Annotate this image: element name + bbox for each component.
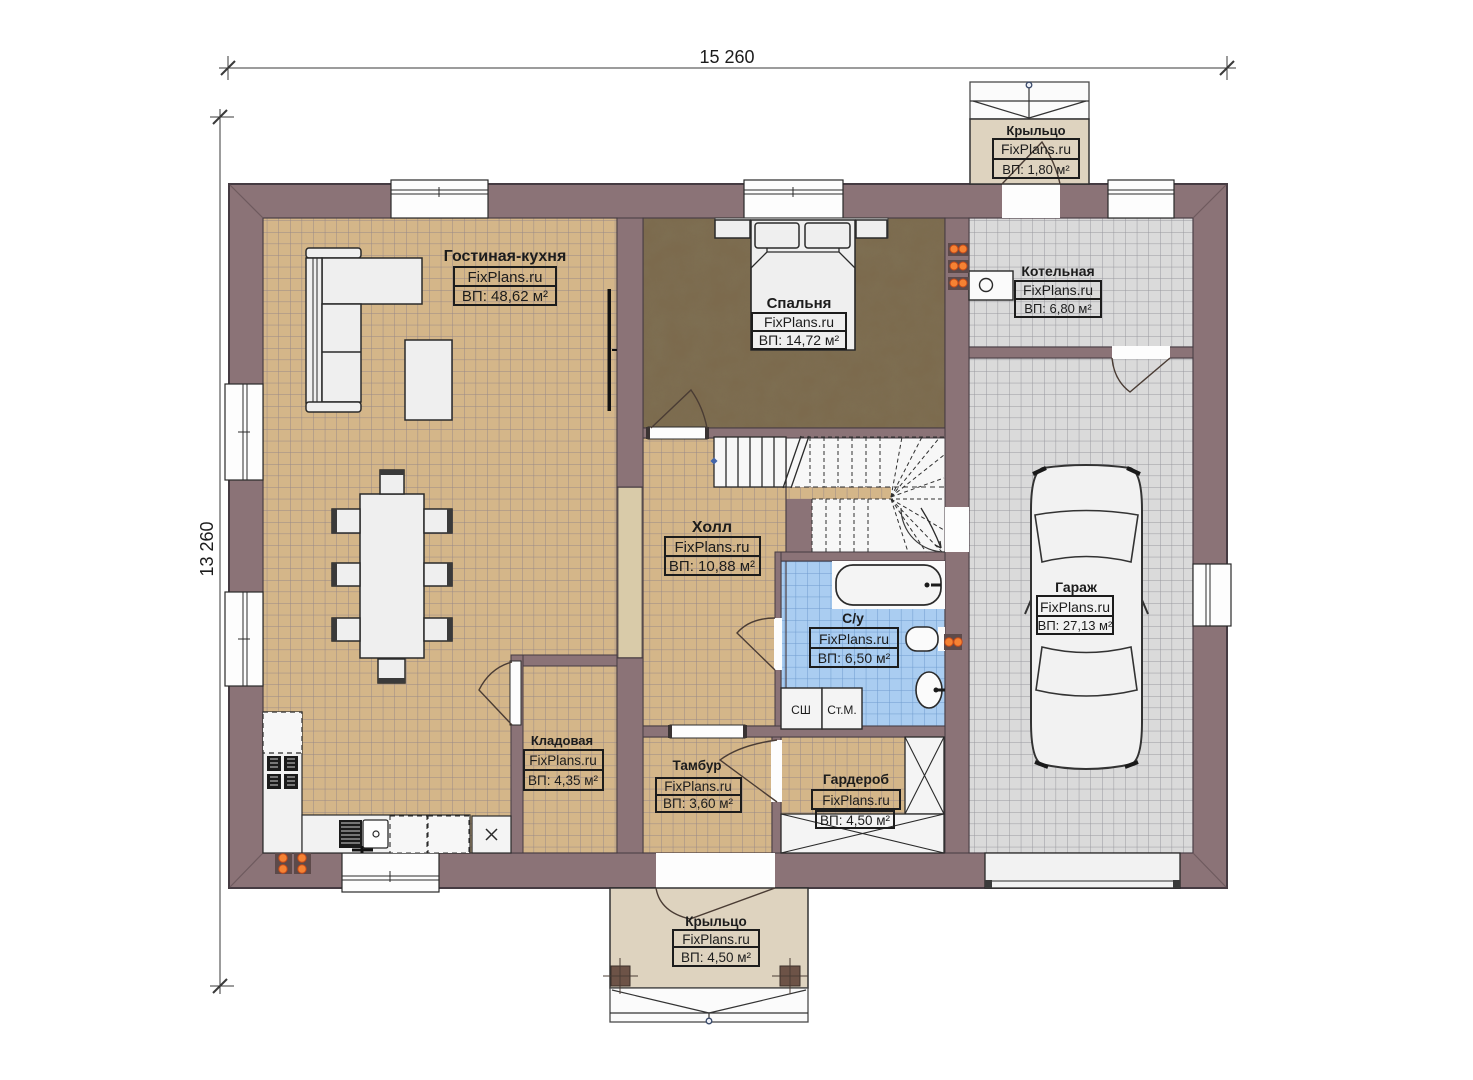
svg-text:Гардероб: Гардероб [823,771,890,787]
svg-text:Кладовая: Кладовая [531,733,593,748]
svg-text:ВП: 6,50 м²: ВП: 6,50 м² [818,650,891,666]
svg-text:ВП: 27,13 м²: ВП: 27,13 м² [1038,618,1113,633]
svg-text:FixPlans.ru: FixPlans.ru [529,753,597,768]
svg-text:Крыльцо: Крыльцо [685,914,746,929]
svg-text:ВП: 10,88 м²: ВП: 10,88 м² [669,558,755,575]
svg-text:FixPlans.ru: FixPlans.ru [1001,141,1071,157]
svg-text:ВП: 1,80 м²: ВП: 1,80 м² [1002,162,1070,177]
svg-text:15 260: 15 260 [699,47,754,67]
svg-text:Крыльцо: Крыльцо [1006,123,1065,138]
svg-text:ВП: 4,35 м²: ВП: 4,35 м² [528,773,599,788]
svg-text:Гараж: Гараж [1055,579,1098,595]
svg-text:FixPlans.ru: FixPlans.ru [1023,282,1093,298]
svg-text:СШ: СШ [791,703,811,717]
svg-text:С/у: С/у [842,610,864,626]
svg-text:Котельная: Котельная [1021,263,1094,279]
svg-text:FixPlans.ru: FixPlans.ru [822,793,890,808]
svg-text:Ст.М.: Ст.М. [827,703,857,717]
svg-text:Тамбур: Тамбур [673,758,722,773]
svg-text:FixPlans.ru: FixPlans.ru [1040,599,1110,615]
svg-text:ВП: 4,50 м²: ВП: 4,50 м² [820,813,891,828]
svg-text:FixPlans.ru: FixPlans.ru [674,539,749,556]
svg-text:Гостиная-кухня: Гостиная-кухня [444,248,567,265]
svg-text:ВП: 48,62 м²: ВП: 48,62 м² [462,288,548,305]
svg-text:ВП: 14,72 м²: ВП: 14,72 м² [759,332,840,348]
svg-text:Спальня: Спальня [767,295,832,312]
svg-text:FixPlans.ru: FixPlans.ru [764,314,834,330]
svg-text:FixPlans.ru: FixPlans.ru [819,631,889,647]
svg-text:FixPlans.ru: FixPlans.ru [682,932,750,947]
svg-text:13 260: 13 260 [197,521,217,576]
svg-text:ВП: 6,80 м²: ВП: 6,80 м² [1024,301,1092,316]
svg-text:ВП: 3,60 м²: ВП: 3,60 м² [663,796,734,811]
svg-text:Холл: Холл [692,519,732,536]
svg-text:ВП: 4,50 м²: ВП: 4,50 м² [681,950,752,965]
svg-text:FixPlans.ru: FixPlans.ru [664,779,732,794]
svg-text:FixPlans.ru: FixPlans.ru [467,269,542,286]
